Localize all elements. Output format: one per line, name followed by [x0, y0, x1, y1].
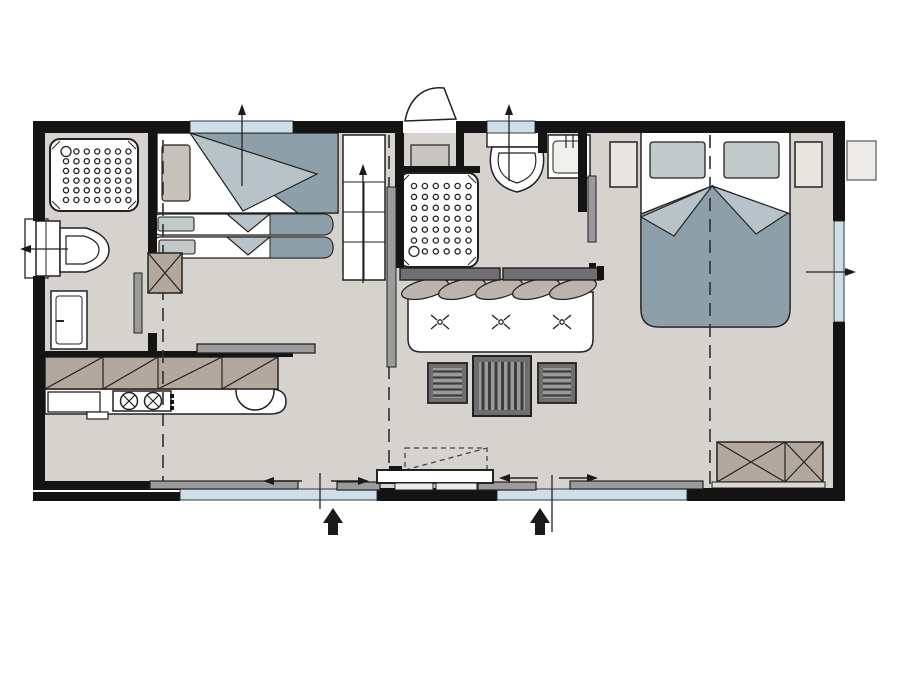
- pull-out-bed-upper: [151, 214, 333, 235]
- rail-tick: [589, 263, 596, 268]
- vanity-cabinet: [51, 291, 87, 349]
- single-bed-pillow: [162, 145, 190, 201]
- stool-right: [538, 363, 576, 403]
- coffee-table: [473, 356, 531, 416]
- sofa-back-rail-left: [400, 268, 500, 280]
- shower-2-head-wall: [397, 166, 480, 173]
- sliding-door-bathroom1: [134, 273, 142, 333]
- wall-bathroom1-lower: [148, 333, 157, 353]
- wardrobe-column: [148, 253, 182, 293]
- wardrobe: [712, 442, 825, 488]
- floor-plan: [0, 0, 900, 675]
- overhead-cabinets: [45, 357, 278, 389]
- door-opening: [403, 121, 456, 133]
- sliding-glass-right: [497, 489, 687, 500]
- sliding-door-shower-room: [588, 176, 596, 242]
- pillow-right: [724, 142, 779, 178]
- exterior-utility-box: [847, 141, 876, 180]
- nightstand-left: [610, 142, 637, 187]
- sofa-back-rail-right: [503, 268, 601, 280]
- wall-shower-room-east: [578, 133, 587, 212]
- pillow-left: [650, 142, 705, 178]
- slider-panel-4: [570, 481, 703, 489]
- stool-left: [428, 363, 467, 403]
- hob-2-burners: [113, 391, 174, 411]
- living-area: [400, 274, 599, 416]
- shelf-unit: [343, 135, 385, 280]
- rail-end-cap: [597, 266, 604, 280]
- sofa: [400, 274, 599, 352]
- sliding-glass-left: [180, 489, 377, 500]
- nightstand-right: [795, 142, 822, 187]
- shower-tray-2: [399, 173, 478, 267]
- breakfast-bar: [197, 344, 315, 353]
- wall-wc-stub: [538, 133, 547, 153]
- kids-bedroom: [151, 133, 385, 280]
- sliding-door-kids-room: [387, 187, 396, 367]
- fridge-handle: [87, 412, 108, 419]
- slider-panel-1: [150, 481, 298, 489]
- shower-tray-1: [50, 139, 138, 211]
- door-handle: [389, 466, 402, 471]
- window-top-middle: [487, 121, 535, 133]
- fridge: [48, 392, 100, 412]
- wall-entry-stub: [456, 133, 464, 172]
- wall-bathroom1: [148, 133, 157, 253]
- kitchen-block: [40, 344, 315, 419]
